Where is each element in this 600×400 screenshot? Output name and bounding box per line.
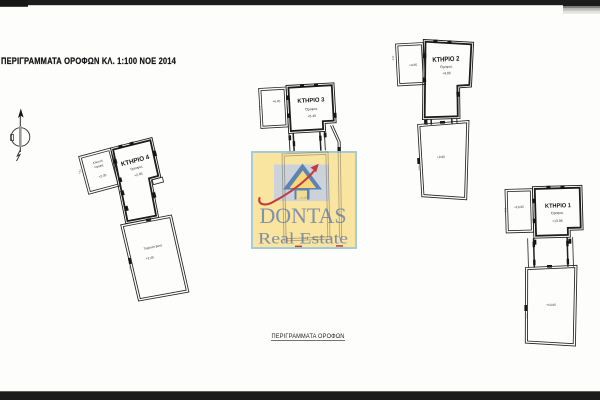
svg-text:+9.85: +9.85 — [409, 63, 417, 67]
svg-text:Όροφος: Όροφος — [439, 65, 453, 70]
svg-text:3.00: 3.00 — [525, 313, 527, 318]
svg-text:ΠΕΡΙΓΡΑΜΜΑΤΑ ΟΡΟΦΩΝ: ΠΕΡΙΓΡΑΜΜΑΤΑ ΟΡΟΦΩΝ — [272, 333, 345, 340]
svg-text:ΚΤΗΡΙΟ 2: ΚΤΗΡΙΟ 2 — [432, 56, 460, 64]
svg-text:+13.95: +13.95 — [514, 205, 524, 209]
svg-text:+6.45: +6.45 — [307, 114, 316, 118]
svg-text:+13.95: +13.95 — [552, 219, 563, 223]
svg-text:ΠΕΡΙΓΡΑΜΜΑΤΑ ΟΡΟΦΩΝ ΚΛ. 1:100: ΠΕΡΙΓΡΑΜΜΑΤΑ ΟΡΟΦΩΝ ΚΛ. 1:100 ΝΟΕ 2014 — [1, 56, 176, 67]
svg-text:+6.45: +6.45 — [272, 99, 281, 103]
svg-text:ΚΤΗΡΙΟ 1: ΚΤΗΡΙΟ 1 — [545, 203, 572, 210]
svg-text:+9.85: +9.85 — [442, 71, 451, 75]
svg-text:3.00: 3.00 — [419, 165, 421, 170]
svg-text:Όροφος: Όροφος — [304, 107, 318, 112]
svg-text:Όροφος: Όροφος — [550, 211, 564, 215]
svg-text:+6.45: +6.45 — [299, 196, 307, 200]
svg-text:2.90: 2.90 — [393, 55, 395, 60]
svg-text:3.10: 3.10 — [260, 105, 262, 110]
svg-text:+9.90: +9.90 — [437, 155, 445, 159]
svg-text:DONTAS: DONTAS — [260, 203, 347, 228]
svg-text:Real Estate: Real Estate — [258, 231, 348, 248]
svg-text:+13.95: +13.95 — [546, 303, 556, 307]
svg-text:2.90: 2.90 — [506, 207, 508, 212]
